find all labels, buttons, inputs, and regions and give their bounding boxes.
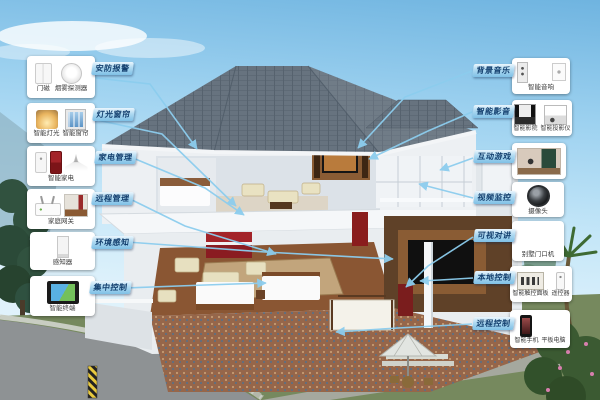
range-hood-icon [65, 154, 88, 171]
label-remote: 远程控制 [472, 317, 515, 330]
water-heater-icon [35, 152, 47, 173]
wall-panel-icon [531, 63, 549, 81]
remote-control-box: 智能手机 平板电脑 [510, 310, 570, 348]
label-lighting: 灯光窗帘 [92, 108, 135, 121]
connector-gateway [130, 199, 276, 254]
device-caption: 家庭网关 [48, 218, 74, 225]
smartphone-icon [520, 315, 532, 337]
home-cinema-icon [514, 104, 536, 125]
device-item: 遥控器 [552, 272, 570, 297]
device-caption: 智能手机 [514, 338, 538, 344]
game-box [512, 143, 566, 179]
gateway-devices-box: 家庭网关 [27, 189, 95, 229]
projector-icon [544, 105, 567, 125]
room-photo-icon [64, 194, 88, 217]
label-music: 背景音乐 [472, 64, 515, 77]
local-control-box: 智能触控面板 遥控器 [510, 266, 572, 302]
label-intercom: 可视对讲 [473, 229, 516, 242]
device-item: 智能窗帘 [63, 110, 89, 137]
label-central: 集中控制 [89, 281, 132, 294]
music-devices-box: 智能音响 [512, 58, 570, 94]
device-item: 平板电脑 [542, 315, 566, 344]
device-caption: 智能触控面板 [512, 291, 548, 297]
device-caption: 平板电脑 [542, 338, 566, 344]
device-item: 智能灯光 [34, 110, 60, 137]
device-caption: 智能投影仪 [541, 126, 571, 132]
device-caption: 别墅门口机 [522, 251, 555, 258]
cctv-box: 摄像头 [512, 182, 564, 217]
device-item: 智能触控面板 [512, 272, 548, 297]
connector-sensing [127, 242, 393, 259]
smart-home-diagram: 门磁 烟雾探测器 安防报警 智能灯光 智能窗帘 灯光窗帘 智能家电 家电管理 [0, 0, 600, 400]
connector-central [125, 283, 266, 288]
device-item: 烟雾探测器 [55, 63, 88, 92]
tablet-icon [546, 315, 562, 337]
smart-curtain-icon [66, 110, 85, 129]
device-caption: 感知器 [53, 259, 73, 266]
label-gateway: 远程管理 [91, 192, 134, 205]
label-game: 互动游戏 [473, 150, 516, 163]
device-caption: 智能窗帘 [63, 130, 89, 137]
dome-camera-icon [527, 185, 550, 207]
smoke-detector-icon [61, 63, 82, 84]
label-sensing: 环境感知 [91, 236, 134, 249]
device-caption: 智能灯光 [34, 130, 60, 137]
device-item: 门磁 [35, 63, 52, 92]
label-appliance: 家电管理 [94, 151, 137, 164]
device-icons [517, 62, 566, 83]
device-caption: 智能家电 [48, 175, 74, 182]
intercom-box: 别墅门口机 [512, 221, 564, 261]
smart-light-icon [36, 110, 58, 129]
keypad-icon [552, 63, 566, 81]
connector-appliance [133, 158, 244, 215]
connector-remote [336, 324, 472, 332]
label-cctv: 视频监控 [473, 191, 516, 204]
label-av: 智能影音 [472, 105, 515, 118]
device-icons [35, 151, 88, 174]
connector-local [420, 278, 473, 281]
touch-panel-icon [517, 272, 544, 290]
connector-cctv [419, 184, 473, 198]
amplifier-icon [517, 62, 528, 83]
router-icon [35, 203, 61, 216]
device-caption: 智能音响 [528, 84, 554, 91]
door-station-icon [531, 224, 546, 250]
label-local: 本地控制 [473, 271, 516, 284]
device-item: 智能影院 [513, 104, 537, 132]
sensing-devices-box: 感知器 [30, 232, 95, 270]
device-caption: 摄像头 [528, 208, 548, 215]
sensor-icon [57, 236, 69, 258]
remote-control-icon [556, 272, 565, 290]
touchscreen-terminal-icon [47, 281, 79, 304]
lighting-devices-box: 智能灯光 智能窗帘 [27, 103, 95, 143]
device-caption: 遥控器 [552, 291, 570, 297]
device-icons [35, 194, 88, 217]
device-item: 智能投影仪 [541, 105, 571, 132]
appliance-devices-box: 智能家电 [27, 146, 95, 186]
device-item: 智能手机 [514, 315, 538, 344]
security-devices-box: 门磁 烟雾探测器 [27, 56, 95, 98]
device-caption: 智能终端 [50, 305, 76, 312]
central-control-box: 智能终端 [30, 276, 95, 316]
game-photo-icon [517, 148, 561, 175]
fridge-icon [50, 151, 62, 174]
connector-game [440, 158, 473, 170]
device-caption: 烟雾探测器 [55, 85, 88, 92]
device-caption: 智能影院 [513, 126, 537, 132]
av-devices-box: 智能影院 智能投影仪 [512, 100, 572, 136]
label-security: 安防报警 [91, 62, 134, 75]
device-caption: 门磁 [37, 85, 50, 92]
door-magnet-icon [35, 63, 52, 84]
